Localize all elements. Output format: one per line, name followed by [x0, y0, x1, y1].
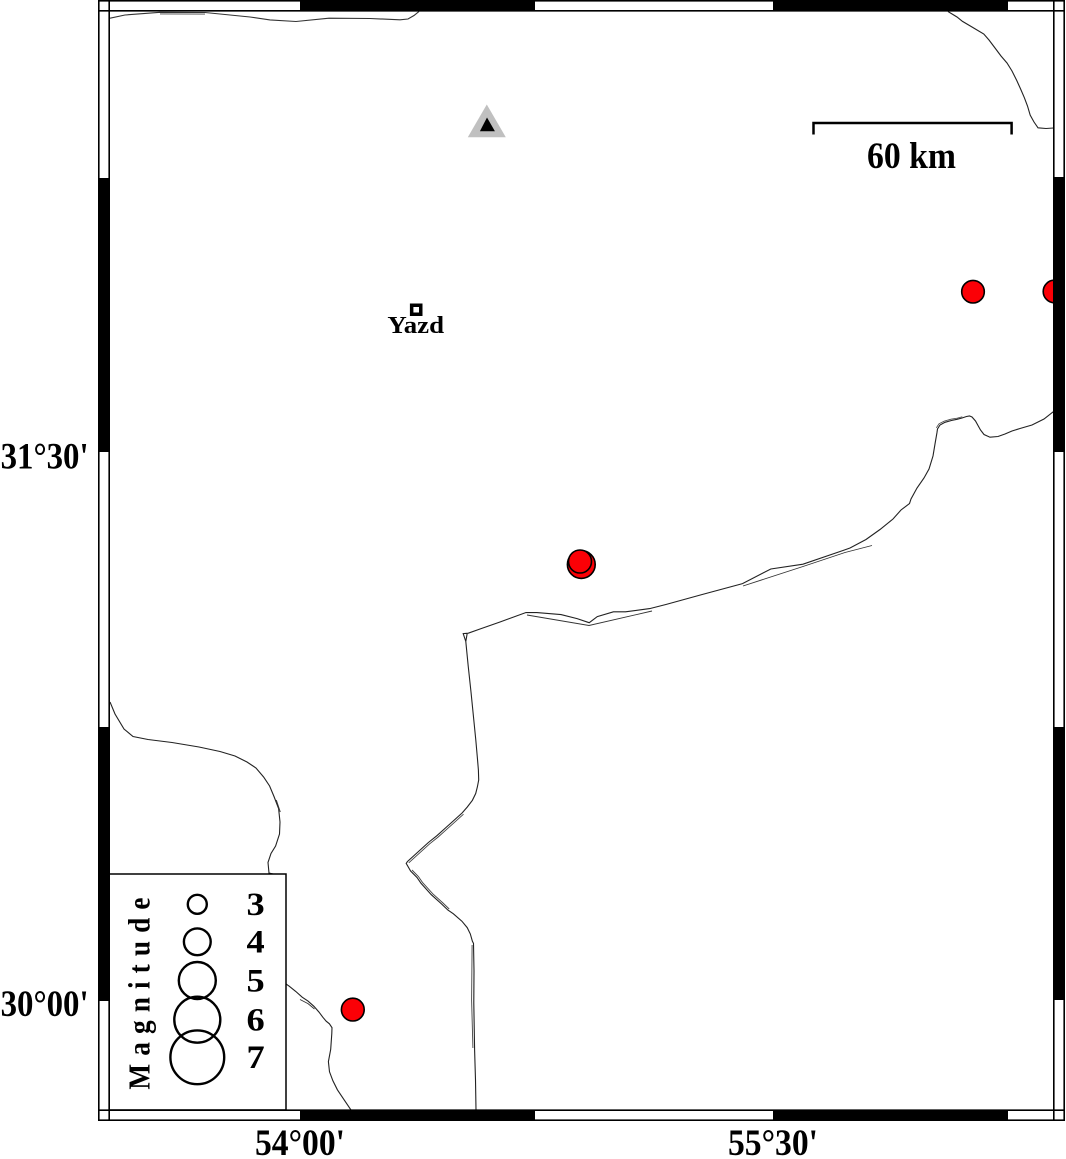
svg-text:55°30': 55°30' — [728, 1122, 818, 1159]
svg-text:Magnitude: Magnitude — [123, 889, 157, 1089]
svg-text:6: 6 — [247, 1002, 265, 1038]
svg-text:5: 5 — [247, 963, 265, 999]
svg-text:54°00': 54°00' — [255, 1122, 345, 1159]
svg-text:60 km: 60 km — [867, 135, 956, 176]
svg-text:4: 4 — [247, 924, 265, 960]
svg-text:3: 3 — [247, 887, 265, 923]
svg-text:7: 7 — [247, 1040, 265, 1076]
svg-text:Yazd: Yazd — [387, 312, 444, 339]
svg-text:30°00': 30°00' — [1, 983, 89, 1024]
svg-text:31°30': 31°30' — [1, 436, 89, 477]
